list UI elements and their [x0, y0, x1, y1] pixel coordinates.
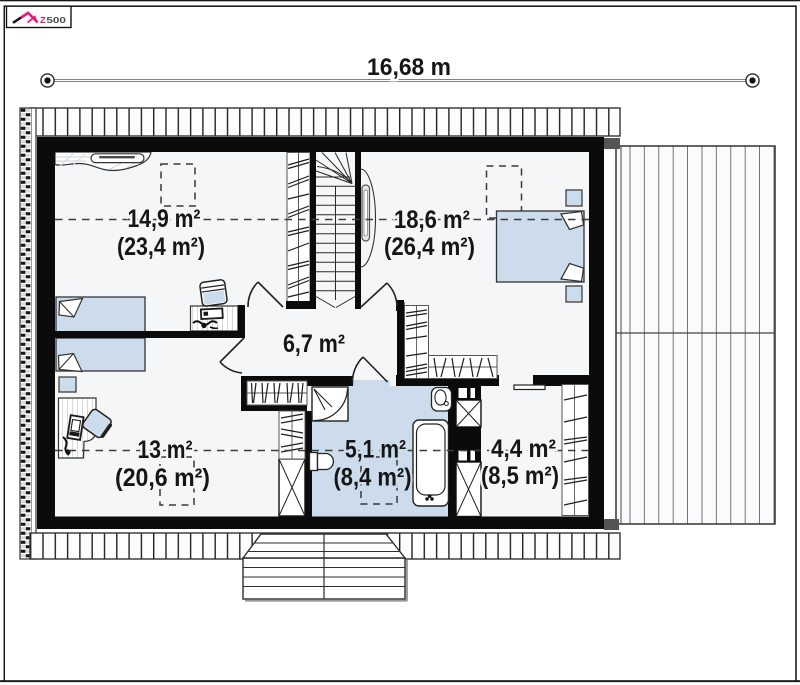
svg-text:6,7 m²: 6,7 m² — [283, 330, 345, 358]
svg-text:(8,5 m²): (8,5 m²) — [481, 462, 559, 490]
svg-text:13 m²: 13 m² — [138, 436, 193, 464]
svg-text:16,68 m: 16,68 m — [367, 54, 451, 81]
svg-text:(26,4 m²): (26,4 m²) — [384, 233, 475, 261]
svg-text:14,9 m²: 14,9 m² — [128, 205, 201, 233]
svg-text:(23,4 m²): (23,4 m²) — [117, 233, 205, 261]
svg-text:5,1 m²: 5,1 m² — [345, 436, 406, 464]
svg-text:(8,4 m²): (8,4 m²) — [334, 464, 412, 492]
svg-text:(20,6 m²): (20,6 m²) — [115, 464, 210, 492]
svg-text:18,6 m²: 18,6 m² — [394, 206, 470, 234]
svg-text:Z: Z — [40, 16, 46, 25]
svg-text:4,4 m²: 4,4 m² — [491, 435, 556, 463]
svg-text:500: 500 — [46, 16, 66, 25]
